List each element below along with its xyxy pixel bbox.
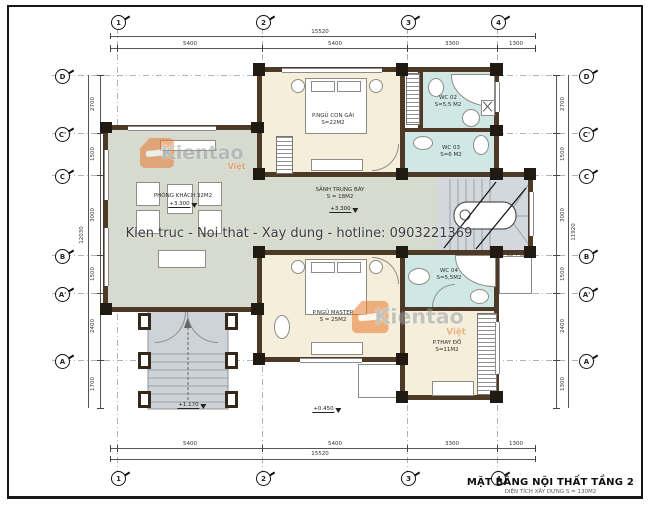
- column-block: [251, 303, 264, 315]
- dim-bottom-2: 5400: [328, 441, 342, 447]
- grid-bubble-row-Ap: A': [55, 287, 70, 302]
- dim-tick: [553, 293, 560, 294]
- column-block: [396, 391, 408, 403]
- dressing-label: P.THAY ĐỒ S=11M2: [433, 340, 462, 354]
- grid-bubble-row-Bb: B: [579, 249, 594, 264]
- wc4-area: S=5,5M2: [436, 275, 461, 282]
- dim-tick: [553, 75, 560, 76]
- dim-tick: [110, 45, 111, 52]
- wardrobe: [477, 313, 497, 395]
- column-block: [251, 122, 264, 133]
- toilet: [470, 289, 489, 304]
- dim-tick: [553, 360, 560, 361]
- dressing-area: S=11M2: [433, 347, 462, 354]
- pillow: [311, 81, 335, 92]
- column-block: [490, 168, 503, 180]
- dim-right-4: 1500: [560, 267, 566, 281]
- dim-tick: [535, 33, 536, 39]
- pillow: [337, 262, 361, 273]
- watermark-brand-text: Kientao: [161, 142, 244, 164]
- porch-level-marker: +1.170: [177, 402, 206, 409]
- dim-top-1: 5400: [183, 41, 197, 47]
- grid-bubble-row-Apb: A': [579, 287, 594, 302]
- dim-left-1: 2700: [90, 97, 96, 111]
- grid-bubble-col-2: 2: [256, 15, 271, 30]
- dim-right-6: 1300: [560, 377, 566, 391]
- grid-bubble-row-A: A: [55, 354, 70, 369]
- column-block: [396, 246, 408, 258]
- wc4-label: WC 04 S=5,5M2: [436, 268, 461, 282]
- dim-line: [110, 48, 536, 49]
- level-triangle-icon: [192, 203, 198, 208]
- column-block: [490, 63, 503, 76]
- dim-tick: [535, 456, 536, 462]
- window: [104, 150, 109, 200]
- grid-bubble-col-3b: 3: [401, 471, 416, 486]
- column-block: [100, 122, 112, 133]
- grid-bubble-row-Ab: A: [579, 354, 594, 369]
- dim-left-2: 1500: [90, 147, 96, 161]
- dim-total-left: 12030: [79, 226, 85, 244]
- dim-top-2: 5400: [328, 41, 342, 47]
- dim-tick: [97, 360, 104, 361]
- kientao-watermark: KientaoViệt: [140, 138, 244, 168]
- column-block: [490, 391, 503, 403]
- closet: [276, 136, 293, 174]
- wc3-name: WC 03: [440, 145, 462, 152]
- column-block: [524, 246, 536, 258]
- girl-bedroom-label: P.NGỦ CON GÁI S=22M2: [312, 113, 354, 127]
- window: [104, 228, 109, 286]
- dim-line: [110, 448, 536, 449]
- nightstand: [291, 79, 305, 93]
- grid-bubble-col-1: 1: [111, 15, 126, 30]
- level-triangle-icon: [353, 208, 359, 213]
- dim-tick: [262, 45, 263, 52]
- wall-segment: [400, 67, 405, 177]
- window: [495, 322, 500, 374]
- grid-bubble-row-Cb: C: [579, 169, 594, 184]
- column-block: [396, 353, 408, 365]
- title-block: MẶT BẰNG NỘI THẤT TẦNG 2 DIỆN TÍCH XÂY D…: [467, 477, 634, 495]
- wc3-label: WC 03 S=6 M2: [440, 145, 462, 159]
- dim-right-5: 2400: [560, 319, 566, 333]
- closet: [406, 73, 420, 125]
- dim-tick: [407, 45, 408, 52]
- watermark-brand: KientaoViệt: [161, 142, 244, 164]
- grid-bubble-row-C: C: [55, 169, 70, 184]
- dim-line: [88, 75, 89, 408]
- sofa: [158, 250, 206, 268]
- watermark-suffix: Việt: [446, 327, 465, 337]
- wc3-area: S=6 M2: [440, 152, 462, 159]
- dim-line: [110, 459, 536, 460]
- grid-bubble-row-B: B: [55, 249, 70, 264]
- dim-top-3: 3300: [445, 41, 459, 47]
- dim-bottom-4: 1300: [509, 441, 523, 447]
- column-block: [100, 303, 112, 315]
- floorplan-sheet: 15520 5400 5400 3300 1300 5400 5400 3300…: [0, 0, 650, 508]
- dim-tick: [97, 75, 104, 76]
- dressing-name: P.THAY ĐỒ: [433, 340, 462, 347]
- hall-level-marker: +3.300: [329, 206, 358, 213]
- column-block: [396, 63, 408, 76]
- hall-level: +3.300: [329, 206, 351, 213]
- wc4-name: WC 04: [436, 268, 461, 275]
- hall-label: SẢNH TRUNG BÀY S = 18M2: [315, 187, 364, 201]
- dim-tick: [117, 445, 118, 452]
- watermark-brand: KientaoViệt: [375, 305, 464, 329]
- side-balcony: [499, 256, 532, 294]
- dim-line: [568, 75, 569, 408]
- master-bedroom-label: P.NGỦ MASTER S = 25M2: [312, 310, 353, 324]
- wc2-label: WC 02 S=5,5 M2: [435, 95, 462, 109]
- dim-tick: [262, 445, 263, 452]
- drawing-title: MẶT BẰNG NỘI THẤT TẦNG 2: [467, 477, 634, 488]
- living-room-label: PHÒNG KHÁCH 32M2: [154, 193, 212, 200]
- drawing-subtitle: DIỆN TÍCH XÂY DỰNG S = 130M2: [467, 489, 634, 495]
- dim-tick: [497, 445, 498, 452]
- dim-left-4: 1500: [90, 267, 96, 281]
- dim-line: [556, 75, 557, 408]
- dim-right-3: 3000: [560, 208, 566, 222]
- dresser: [311, 159, 363, 171]
- staircase: [438, 176, 532, 254]
- column-block: [253, 353, 265, 365]
- master-area: S = 25M2: [312, 317, 353, 324]
- grid-bubble-col-3: 3: [401, 15, 416, 30]
- column-block: [524, 168, 536, 180]
- entry-steps: [138, 308, 238, 414]
- dim-left-3: 3000: [90, 208, 96, 222]
- window: [300, 358, 362, 363]
- living-level-marker: +3.300: [168, 201, 197, 208]
- hotline-banner: Kien truc - Noi that - Xay dung - hotlin…: [126, 226, 473, 241]
- girl-bedroom-name: P.NGỦ CON GÁI: [312, 113, 354, 120]
- column-block: [490, 246, 503, 258]
- wc2-area: S=5,5 M2: [435, 102, 462, 109]
- sink: [408, 268, 430, 285]
- grid-bubble-col-1b: 1: [111, 471, 126, 486]
- living-level: +3.300: [168, 201, 190, 208]
- bench: [432, 381, 474, 396]
- dim-line: [110, 36, 536, 37]
- column-block: [490, 125, 503, 136]
- watermark-suffix: Việt: [228, 162, 246, 171]
- dim-total-bottom: 15520: [311, 451, 329, 457]
- dim-bottom-3: 3300: [445, 441, 459, 447]
- column-block: [253, 63, 265, 76]
- pillow: [337, 81, 361, 92]
- dim-top-4: 1300: [509, 41, 523, 47]
- window: [495, 82, 500, 112]
- pillow: [311, 262, 335, 273]
- dim-tick: [497, 45, 498, 52]
- dim-tick: [535, 45, 536, 52]
- dim-tick: [553, 133, 560, 134]
- grid-bubble-row-Db: D: [579, 69, 594, 84]
- toilet: [473, 135, 489, 155]
- grid-bubble-col-2b: 2: [256, 471, 271, 486]
- dim-tick: [407, 445, 408, 452]
- dim-right-2: 1500: [560, 147, 566, 161]
- dim-tick: [110, 445, 111, 452]
- level-triangle-icon: [201, 404, 207, 409]
- window: [128, 126, 216, 131]
- dim-tick: [110, 456, 111, 462]
- tv-cabinet: [311, 342, 363, 355]
- dim-bottom-1: 5400: [183, 441, 197, 447]
- dim-tick: [97, 408, 104, 409]
- dim-tick: [117, 45, 118, 52]
- window: [529, 192, 534, 236]
- dim-tick: [110, 33, 111, 39]
- grid-bubble-row-Cp: C': [55, 127, 70, 142]
- yard-level: +0.450: [312, 406, 334, 413]
- dim-tick: [553, 408, 560, 409]
- dim-left-6: 1700: [90, 377, 96, 391]
- wall-segment: [400, 128, 499, 132]
- dim-left-5: 2400: [90, 319, 96, 333]
- dim-tick: [553, 255, 560, 256]
- master-name: P.NGỦ MASTER: [312, 310, 353, 317]
- grid-bubble-col-4: 4: [491, 15, 506, 30]
- wc2-name: WC 02: [435, 95, 462, 102]
- girl-bedroom-area: S=22M2: [312, 120, 354, 127]
- column-block: [253, 168, 265, 180]
- dim-tick: [535, 445, 536, 452]
- dim-right-1: 2700: [560, 97, 566, 111]
- level-triangle-icon: [336, 408, 342, 413]
- sink: [462, 109, 480, 127]
- grid-bubble-row-Cpb: C': [579, 127, 594, 142]
- sink: [413, 136, 433, 150]
- dim-total-top: 15520: [311, 29, 329, 35]
- nightstand: [369, 79, 383, 93]
- column-block: [396, 168, 408, 180]
- window: [282, 68, 382, 73]
- porch-level: +1.170: [177, 402, 199, 409]
- yard-level-marker: +0.450: [312, 406, 341, 413]
- grid-bubble-row-D: D: [55, 69, 70, 84]
- nightstand: [291, 260, 305, 274]
- kientao-watermark: KientaoViệt: [352, 301, 464, 333]
- dim-total-right: 11920: [571, 223, 577, 241]
- hall-name: SẢNH TRUNG BÀY: [315, 187, 364, 194]
- hall-area: S = 18M2: [315, 194, 364, 201]
- armchair: [274, 315, 290, 339]
- dim-tick: [553, 175, 560, 176]
- watermark-brand-text: Kientao: [375, 305, 464, 329]
- column-block: [253, 246, 265, 258]
